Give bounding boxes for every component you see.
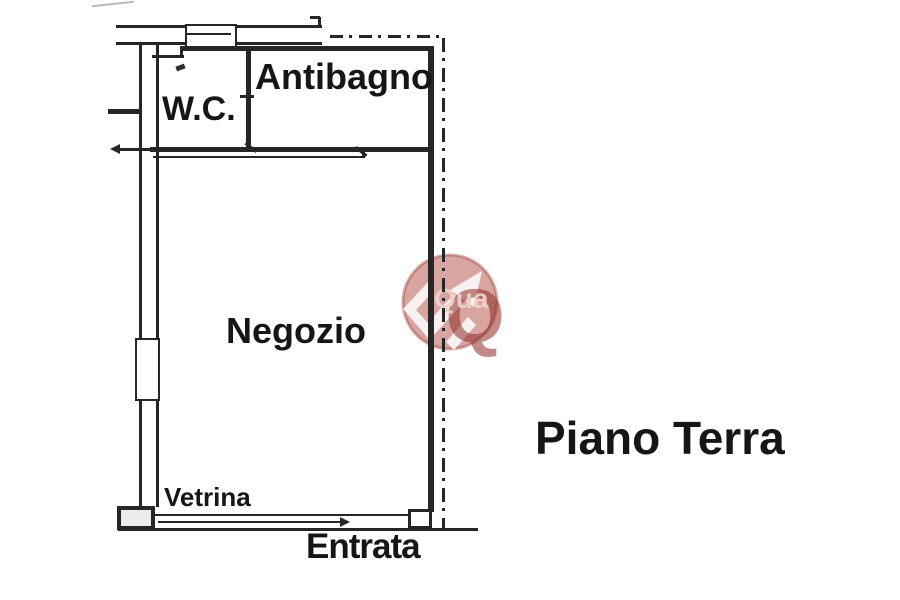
room-label-negozio: Negozio [226,312,366,350]
wall-bottom-outer [118,528,478,531]
scan-artifact [175,64,185,72]
wall-break-arrow-icon [110,144,120,154]
wall-left-stub [108,109,140,114]
vetrina-window-top [155,514,408,516]
wall-wc-notch-right [180,46,183,58]
wall-rooms-bottom-line2 [153,156,363,158]
boundary-dashdot-right [442,38,445,528]
wall-top-hook-cap [310,16,320,19]
room-label-wc: W.C. [162,92,236,128]
wall-divider-door-jamb [240,95,254,98]
pier-bottom-right [408,509,432,529]
top-wall-window-midline [187,33,231,35]
vetrina-window-mid [158,521,340,523]
watermark-logo: Q Qua [390,245,560,385]
wall-rooms-bottom [150,147,434,152]
scan-artifact [92,1,134,7]
floorplan-scan: Q Qua W.C. Antibagno Negozio Vetrina Ent… [0,0,900,600]
vetrina-label: Vetrina [164,484,251,511]
floor-title: Piano Terra [535,414,785,462]
vetrina-arrow-icon [340,517,350,527]
pier-bottom-left [117,506,155,530]
room-label-antibagno: Antibagno [255,58,433,96]
left-wall-window [135,338,160,401]
entrata-label: Entrata [306,529,420,566]
wall-right [428,46,434,512]
wall-rooms-top [180,46,434,51]
wall-divider-wc-antibagno [246,46,251,152]
boundary-dashdot-top [330,35,442,38]
wall-left [139,43,159,507]
